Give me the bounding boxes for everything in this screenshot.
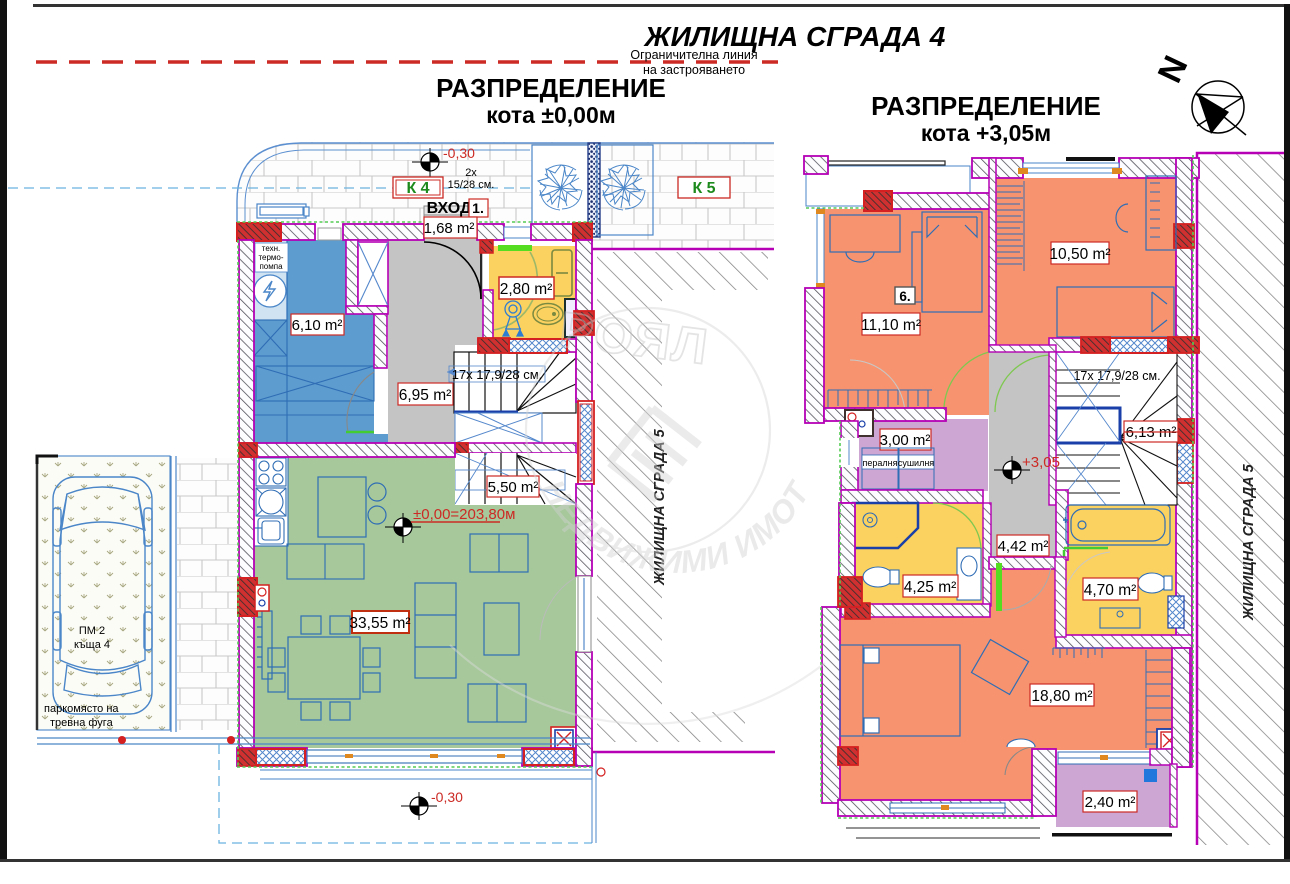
svg-text:6.: 6. [899,289,910,304]
svg-text:кота ±0,00м: кота ±0,00м [486,102,616,128]
svg-text:РАЗПРЕДЕЛЕНИЕ: РАЗПРЕДЕЛЕНИЕ [436,73,666,103]
svg-text:6,10 m²: 6,10 m² [292,317,343,334]
svg-text:2,40 m²: 2,40 m² [1085,794,1136,811]
svg-text:1,68 m²: 1,68 m² [424,220,475,237]
svg-text:помпа: помпа [259,262,283,271]
svg-text:термо-: термо- [258,253,283,262]
svg-text:17х 17,9/28 см.: 17х 17,9/28 см. [452,367,543,382]
svg-text:Ограничителна линия: Ограничителна линия [630,48,757,62]
svg-text:18,80 m²: 18,80 m² [1031,688,1092,705]
svg-text:РАЗПРЕДЕЛЕНИЕ: РАЗПРЕДЕЛЕНИЕ [871,91,1101,121]
svg-text:±0,00=203,80м: ±0,00=203,80м [413,506,515,523]
svg-text:2,80 m²: 2,80 m² [500,281,553,298]
svg-text:2х: 2х [465,167,477,179]
svg-text:ПМ 2: ПМ 2 [79,625,105,637]
svg-text:К 4: К 4 [406,180,429,197]
svg-text:къща 4: къща 4 [74,639,110,651]
svg-text:17х 17,9/28 см.: 17х 17,9/28 см. [1073,369,1160,383]
svg-text:К 5: К 5 [692,180,715,197]
svg-text:тревна фуга: тревна фуга [50,717,114,729]
svg-text:сушилня: сушилня [898,458,934,468]
svg-text:4,70 m²: 4,70 m² [1084,582,1137,599]
svg-text:ВХОД: ВХОД [427,200,472,217]
svg-text:3,00 m²: 3,00 m² [880,432,931,449]
svg-text:5,50 m²: 5,50 m² [488,479,539,496]
svg-text:-0,30: -0,30 [443,145,475,161]
svg-text:11,10 m²: 11,10 m² [861,317,921,334]
svg-text:1.: 1. [472,200,484,216]
svg-text:+3,05: +3,05 [1022,454,1060,471]
svg-text:33,55 m²: 33,55 m² [349,615,410,632]
svg-text:6,95 m²: 6,95 m² [399,387,452,404]
svg-text:15/28 см.: 15/28 см. [448,179,495,191]
svg-text:пералня: пералня [863,458,898,468]
svg-text:ЖИЛИЩНА СГРАДА 5: ЖИЛИЩНА СГРАДА 5 [1241,463,1257,621]
svg-text:-0,30: -0,30 [431,789,463,805]
svg-text:паркомясто на: паркомясто на [44,703,119,715]
svg-text:техн.: техн. [262,244,281,253]
svg-text:4,42 m²: 4,42 m² [998,538,1049,555]
svg-text:кота +3,05м: кота +3,05м [921,120,1051,146]
svg-text:4,25 m²: 4,25 m² [904,579,957,596]
svg-text:10,50 m²: 10,50 m² [1049,246,1110,263]
